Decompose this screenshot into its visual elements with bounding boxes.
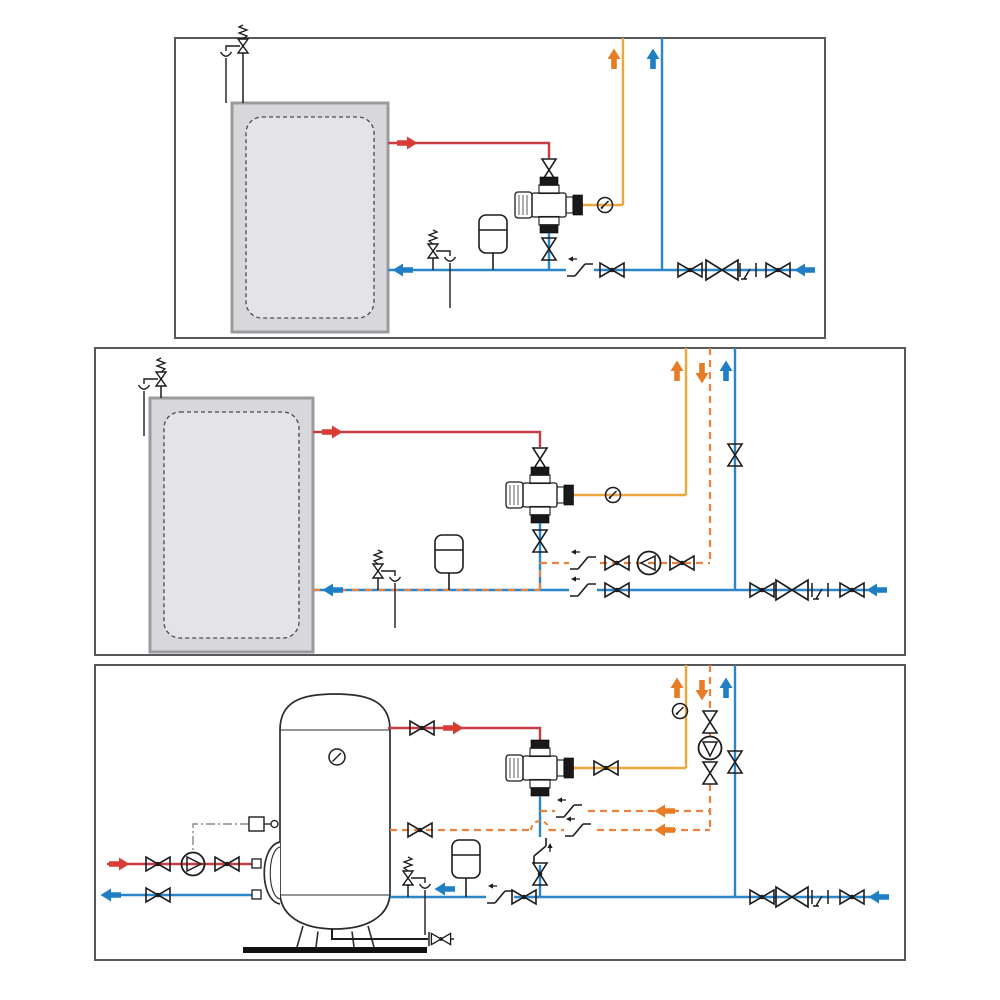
vertical-storage-heater: [280, 694, 390, 929]
panel-3-frame: [95, 665, 905, 960]
panel-1-basic-installation: [175, 25, 825, 338]
storage-tank-inner: [246, 117, 374, 318]
hydraulic-diagram: [0, 0, 1000, 1000]
panel-3-storage-heater-installation: [95, 665, 905, 960]
storage-tank-inner: [164, 412, 299, 638]
base-plate: [243, 947, 427, 953]
diagram-sheet: [0, 0, 1000, 1000]
panel-2-recirculation-installation: [95, 348, 905, 655]
